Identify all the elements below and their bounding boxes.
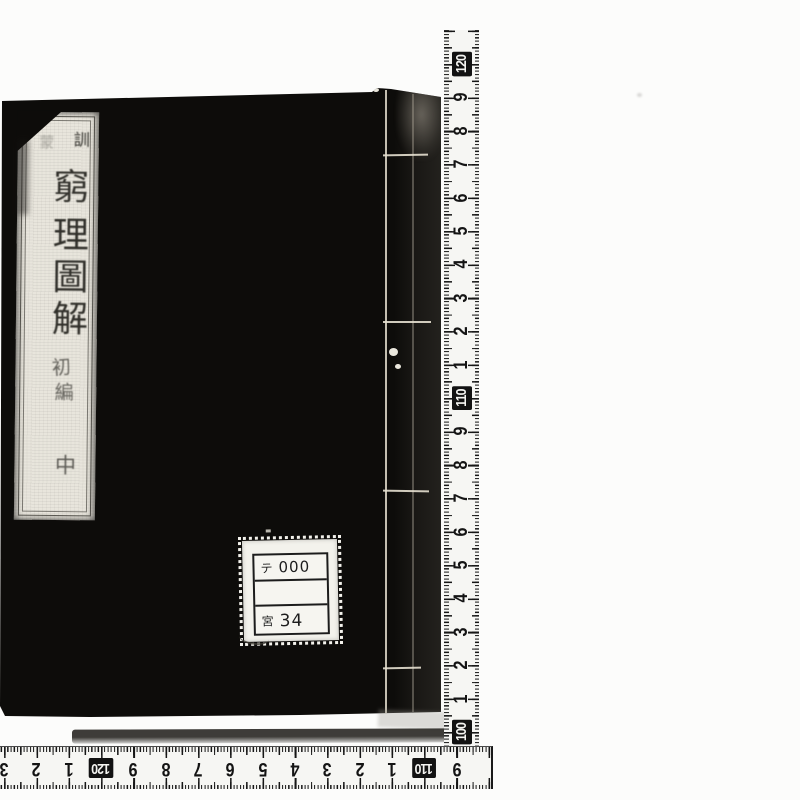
ruler-number: 6	[451, 194, 473, 203]
call-number-box: テ 000 宮 34	[252, 552, 330, 636]
call-number-digits: 000	[278, 558, 310, 577]
ruler-number-boxed: 110	[412, 758, 436, 778]
title-header-char-right: 訓	[74, 132, 90, 148]
title-label-smudge	[17, 140, 29, 215]
scan-photo: 訓 蒙 窮 理 圖 解 初 編 中 テ 000 宮 34	[0, 0, 800, 800]
book-corner-highlight	[396, 90, 442, 160]
ruler-number: 1	[451, 695, 473, 704]
ruler-number: 6	[451, 528, 473, 537]
title-char: 圖	[52, 260, 88, 296]
call-number-label: テ 000 宮 34	[242, 539, 339, 642]
binding-stitch	[383, 490, 429, 493]
ruler-number: 7	[451, 160, 473, 169]
binding-stitch	[383, 321, 431, 323]
title-char: 解	[52, 302, 88, 338]
horizontal-ruler: 3 2 1 120 9 8 7 6 5 4 3 2 1 110 9	[0, 746, 493, 789]
call-number-kana: テ	[260, 559, 272, 576]
ruler-number: 1	[451, 361, 473, 370]
binding-thread-vertical	[385, 90, 387, 714]
ruler-number: 2	[356, 757, 365, 779]
ruler-number: 2	[451, 327, 473, 336]
ruler-number: 8	[162, 757, 171, 779]
ruler-number: 3	[451, 628, 473, 637]
call-number-digits: 34	[279, 610, 303, 630]
ruler-number: 4	[451, 594, 473, 603]
ruler-number: 4	[451, 260, 473, 269]
book-bottom-shadow	[72, 728, 448, 743]
call-number-row-2	[255, 582, 327, 607]
ruler-number: 3	[323, 757, 332, 779]
ruler-number: 3	[0, 757, 8, 779]
ruler-number-boxed: 120	[452, 52, 472, 77]
ruler-number: 4	[291, 757, 300, 779]
ruler-number: 9	[451, 93, 473, 102]
ruler-number: 2	[32, 757, 41, 779]
call-number-row-1: テ 000	[254, 554, 327, 582]
edge-glint	[373, 88, 379, 92]
call-number-row-3: 宮 34	[255, 607, 328, 634]
ruler-number: 6	[226, 757, 235, 779]
ruler-number-boxed: 110	[452, 386, 472, 410]
ruler-number: 9	[451, 427, 473, 436]
ruler-number: 7	[194, 757, 203, 779]
call-number-kanji: 宮	[261, 612, 273, 629]
ruler-number: 5	[451, 227, 473, 236]
edition-char: 編	[55, 383, 74, 402]
ruler-number: 9	[453, 757, 462, 779]
ruler-number-boxed: 120	[89, 758, 114, 778]
title-char: 窮	[53, 170, 89, 206]
ruler-number: 5	[259, 757, 268, 779]
binding-crease-line	[412, 94, 414, 712]
ruler-ticks-cm	[0, 747, 491, 758]
title-char: 理	[53, 218, 89, 254]
title-header-char-left: 蒙	[39, 135, 54, 150]
ruler-number: 9	[129, 757, 138, 779]
book-spine-edge-shade	[394, 86, 441, 718]
ruler-number: 1	[65, 757, 74, 779]
edition-char: 初	[51, 358, 71, 378]
label-edge-mark	[266, 529, 271, 532]
volume-char: 中	[55, 455, 76, 476]
ruler-ticks-cm	[0, 778, 491, 789]
ruler-number: 5	[451, 561, 473, 570]
ruler-number: 8	[451, 127, 473, 136]
ruler-number: 1	[388, 757, 397, 779]
background-speck	[637, 93, 642, 97]
book-cover: 訓 蒙 窮 理 圖 解 初 編 中	[0, 86, 443, 718]
vertical-ruler: 120 9 8 7 6 5 4 3 2 1 110 9 8 7 6 5 4 3 …	[444, 30, 479, 762]
ruler-number: 8	[451, 461, 473, 470]
wax-speck	[389, 348, 398, 356]
title-label: 訓 蒙 窮 理 圖 解 初 編 中	[14, 112, 99, 521]
wax-speck	[395, 364, 401, 369]
ruler-number: 2	[451, 661, 473, 670]
ruler-number: 3	[451, 294, 473, 303]
ruler-number: 7	[451, 494, 473, 503]
ruler-number-boxed: 100	[452, 720, 472, 745]
